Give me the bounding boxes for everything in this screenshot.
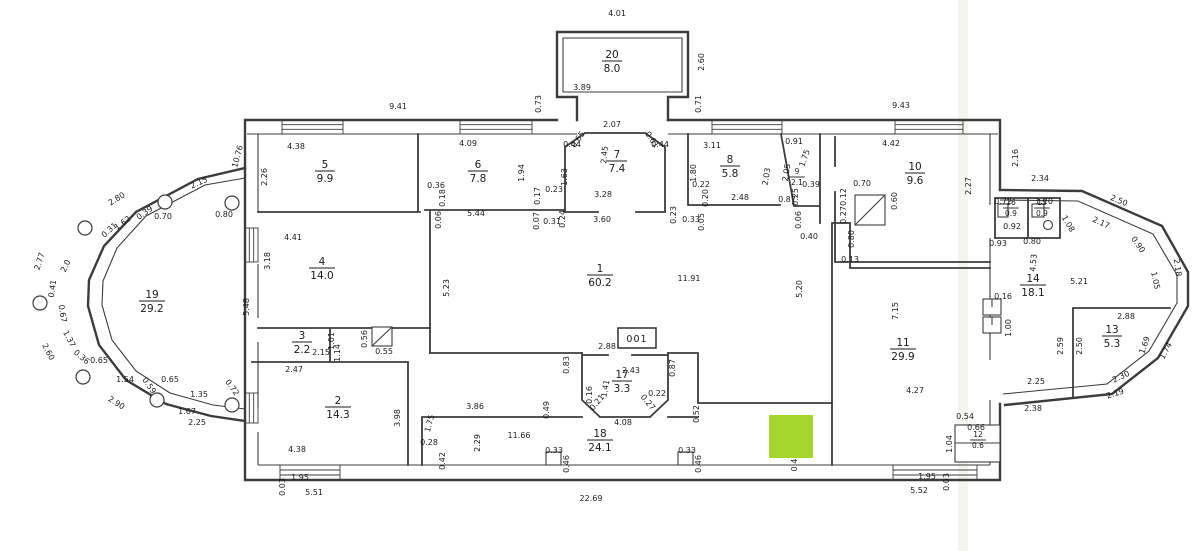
dimension-label: 2.38 [1024, 404, 1042, 413]
room-area-label: 2.1 [791, 178, 803, 187]
dimension-label: 0.20 [701, 189, 710, 207]
dimension-label: 2.60 [697, 53, 706, 71]
dimension-label: 10.76 [230, 144, 245, 168]
dimension-label: 2.03 [761, 167, 773, 186]
unit-number-label: 001 [626, 334, 647, 345]
inner-wall-faces [102, 38, 1177, 465]
dimension-label: 4.09 [459, 139, 477, 148]
dimension-label: 0.24 [558, 210, 567, 228]
dimension-label: 0.54 [956, 412, 974, 421]
dimension-label: 2.77 [33, 251, 47, 271]
dimension-label: 0.46 [694, 455, 703, 473]
room-area-label: 9.6 [907, 175, 924, 187]
dimension-label: 0.07 [532, 212, 541, 230]
room-area-label: 2.2 [294, 344, 311, 356]
dimension-label: 0.65 [90, 356, 108, 365]
dimension-label: 1.54 [116, 375, 134, 384]
dimension-label: 0.73 [534, 95, 543, 113]
room-number-label: 10 [908, 161, 921, 173]
dimension-label: 1.95 [291, 473, 309, 482]
dimension-label: 2.25 [1027, 377, 1045, 386]
room-area-label: 24.1 [588, 442, 611, 454]
dimension-label: 0.65 [161, 375, 179, 384]
dimension-label: 0.72 [223, 378, 241, 398]
dimension-label: 0.33 [678, 446, 696, 455]
dimension-label: 0.52 [692, 405, 701, 423]
room-number-label: 4 [319, 256, 326, 268]
dimension-label: 0.06 [794, 211, 803, 229]
dimension-label: 9.43 [892, 101, 910, 110]
room-area-label: 29.2 [140, 303, 163, 315]
dimension-label: 0.87 [668, 359, 677, 377]
dimension-label: 3.18 [263, 252, 272, 270]
room-area-label: 29.9 [891, 351, 914, 363]
room-area-label: 0.9 [1036, 209, 1048, 218]
dimension-label: 0.36 [72, 348, 91, 366]
highlighted-area[interactable] [769, 415, 813, 458]
dimension-label: 0.80 [847, 230, 856, 248]
dimension-label: 2.07 [603, 120, 621, 129]
room-area-label: 14.3 [326, 409, 349, 421]
dimension-label: 0.55 [375, 347, 393, 356]
room-number-label: 15 [1037, 198, 1047, 207]
room-area-label: 14.0 [310, 270, 333, 282]
sink-fixture [1044, 221, 1053, 230]
dimension-label: 3.11 [703, 141, 721, 150]
dimension-label: 4.38 [288, 445, 306, 454]
dimension-label: 0.03 [942, 473, 951, 491]
dimension-label: 11.66 [508, 431, 531, 440]
dimension-label: 11.91 [678, 274, 701, 283]
dimension-label: 0.42 [438, 452, 447, 470]
room-area-label: 18.1 [1021, 287, 1044, 299]
dimension-label: 1.35 [190, 390, 208, 399]
dimension-label: 0.80 [215, 210, 233, 219]
room-number-label: 2 [335, 395, 342, 407]
dimension-label: 0.39 [802, 180, 820, 189]
room-area-label: 7.8 [470, 173, 487, 185]
dimension-label: 0.91 [785, 137, 803, 146]
labels-layer: 4.012.603.890.730.712.070.650.612.450.44… [33, 9, 1184, 503]
dimension-label: 0.23 [669, 206, 678, 224]
dimension-label: 2.60 [40, 342, 56, 362]
room-area-label: 8.0 [604, 63, 621, 75]
dimension-label: 4.42 [882, 139, 900, 148]
dimension-label: 1.94 [517, 164, 526, 182]
dimension-label: 0.16 [994, 292, 1012, 301]
dimension-label: 3.98 [393, 409, 402, 427]
room-number-label: 11 [896, 337, 909, 349]
dimension-label: 2.50 [1075, 337, 1084, 355]
dimension-label: 1.75 [797, 148, 812, 168]
dimension-label: 1.63 [560, 168, 569, 186]
room-number-label: 14 [1026, 273, 1040, 285]
room-number-label: 6 [475, 159, 482, 171]
dimension-label: 0.27 [839, 206, 848, 224]
dimension-label: 0.83 [562, 356, 571, 374]
dimension-label: 1.04 [945, 435, 954, 453]
room-number-label: 9 [795, 167, 800, 176]
dimension-label: 0.22 [648, 389, 666, 398]
dimension-label: 3.60 [593, 215, 611, 224]
dimension-label: 2.90 [106, 394, 126, 411]
dimension-label: 2.27 [964, 177, 973, 195]
dimension-label: 1.14 [333, 344, 342, 362]
floor-plan-page: 4.012.603.890.730.712.070.650.612.450.44… [0, 0, 1200, 551]
dimension-label: 2.47 [285, 365, 303, 374]
room-number-label: 12 [973, 430, 983, 439]
dimension-label: 0.90 [1129, 235, 1147, 255]
dimension-label: 2.26 [260, 168, 269, 186]
dimension-label: 1.95 [918, 472, 936, 481]
dimension-label: 0.23 [545, 185, 563, 194]
dimension-label: 1.67 [178, 407, 196, 416]
dimension-label: 4.41 [284, 233, 302, 242]
dimension-label: 5.48 [242, 298, 251, 316]
dimension-label: 0.05 [697, 213, 706, 231]
dimension-label: 3.86 [466, 402, 484, 411]
room-area-label: 5.3 [1104, 338, 1121, 350]
dimension-label: 0.80 [1023, 237, 1041, 246]
dimension-label: 0.71 [694, 95, 703, 113]
dimension-label: 1.08 [1060, 214, 1077, 234]
dimension-label: 2.25 [188, 418, 206, 427]
dimension-label: 2.19 [1105, 387, 1125, 401]
room-number-label: 7 [614, 149, 621, 161]
dimension-label: 1.37 [61, 329, 77, 349]
dimension-label: 2.0 [59, 258, 73, 273]
dimension-label: 2.34 [1031, 174, 1049, 183]
dimension-label: 0.41 [47, 279, 58, 298]
dimension-label: 0.70 [154, 212, 172, 221]
room-number-label: 1 [597, 263, 604, 275]
dimension-label: 2.59 [1056, 337, 1065, 355]
dimension-label: 5.20 [795, 280, 804, 298]
fixtures [372, 195, 1053, 465]
dimension-label: 0.44 [651, 140, 669, 149]
dimension-label: 3.28 [594, 190, 612, 199]
room-number-label: 19 [145, 289, 158, 301]
dimension-label: 4.38 [287, 142, 305, 151]
dimension-label: 0.06 [434, 211, 443, 229]
dimension-label: 0.46 [562, 455, 571, 473]
dimension-label: 5.21 [1070, 277, 1088, 286]
dimension-label: 2.88 [598, 342, 616, 351]
dimension-label: 2.80 [107, 190, 127, 207]
dimension-label: 0.67 [56, 304, 68, 323]
room-area-label: 60.2 [588, 277, 611, 289]
room-number-label: 18 [593, 428, 606, 440]
dimension-label: 4.01 [608, 9, 626, 18]
dimension-label: 4.27 [906, 386, 924, 395]
dimension-label: 2.16 [1011, 149, 1020, 167]
dimension-label: 0.49 [542, 401, 551, 419]
room-area-label: 3.3 [614, 383, 631, 395]
dimension-label: 2.88 [1117, 312, 1135, 321]
dimension-label: 0.22 [692, 180, 710, 189]
dimension-label: 2.48 [731, 193, 749, 202]
dimension-label: 22.69 [580, 494, 603, 503]
dimension-label: 9.41 [389, 102, 407, 111]
dimension-label: 0.12 [839, 188, 848, 206]
room-number-label: 5 [322, 159, 329, 171]
room-number-label: 16 [1006, 198, 1016, 207]
dimension-label: 0.56 [360, 330, 369, 348]
room-number-label: 8 [727, 154, 734, 166]
dimension-label: 5.52 [910, 486, 928, 495]
dimension-label: 4.08 [614, 418, 632, 427]
room-number-label: 20 [605, 49, 618, 61]
dimension-label: 0.33 [545, 446, 563, 455]
room-number-label: 13 [1105, 324, 1118, 336]
dimension-label: 0.17 [533, 187, 542, 205]
dimension-label: 0.39 [135, 204, 155, 222]
dimension-label: 0.18 [438, 189, 447, 207]
dimension-label: 0.59 [140, 376, 158, 396]
room-area-label: 0.9 [1005, 209, 1017, 218]
dimension-label: 5.51 [305, 488, 323, 497]
dimension-label: 3.89 [573, 83, 591, 92]
dimension-label: 1.74 [1158, 341, 1174, 361]
dimension-label: 2.29 [473, 434, 482, 452]
room-number-label: 17 [615, 369, 628, 381]
dimension-label: 5.23 [442, 279, 451, 297]
dimension-label: 2.18 [1172, 258, 1183, 277]
room-area-label: 7.4 [609, 163, 626, 175]
outer-walls [88, 32, 1188, 480]
dimension-label: 0.4 [790, 459, 799, 472]
dimension-label: 0.44 [563, 140, 581, 149]
dimension-label: 0.28 [420, 438, 438, 447]
dimension-label: 0.13 [841, 255, 859, 264]
dimension-label: 0.60 [890, 192, 899, 210]
dimension-label: 0.03 [278, 478, 287, 496]
dimension-label: 1.69 [1137, 335, 1152, 355]
dimension-label: 0.70 [853, 179, 871, 188]
dimension-label: 4.53 [1028, 254, 1039, 273]
room-area-label: 9.9 [317, 173, 334, 185]
room-area-label: 0.6 [972, 441, 984, 450]
dimension-label: 0.36 [427, 181, 445, 190]
dimension-label: 0.92 [1003, 222, 1021, 231]
dimension-label: 2.17 [1091, 215, 1111, 231]
dimension-label: 1.05 [1149, 271, 1162, 290]
dimension-label: 0.93 [989, 239, 1007, 248]
room-area-label: 5.8 [722, 168, 739, 180]
dimension-label: 7.15 [891, 302, 900, 320]
dimension-label: 5.44 [467, 209, 485, 218]
scan-seam [958, 0, 968, 551]
dimension-label: 0.87 [778, 195, 796, 204]
dimension-label: 1.00 [1004, 319, 1013, 337]
room-number-label: 3 [299, 330, 306, 342]
floor-plan-drawing: 4.012.603.890.730.712.070.650.612.450.44… [0, 0, 1200, 551]
dimension-label: 0.40 [800, 232, 818, 241]
